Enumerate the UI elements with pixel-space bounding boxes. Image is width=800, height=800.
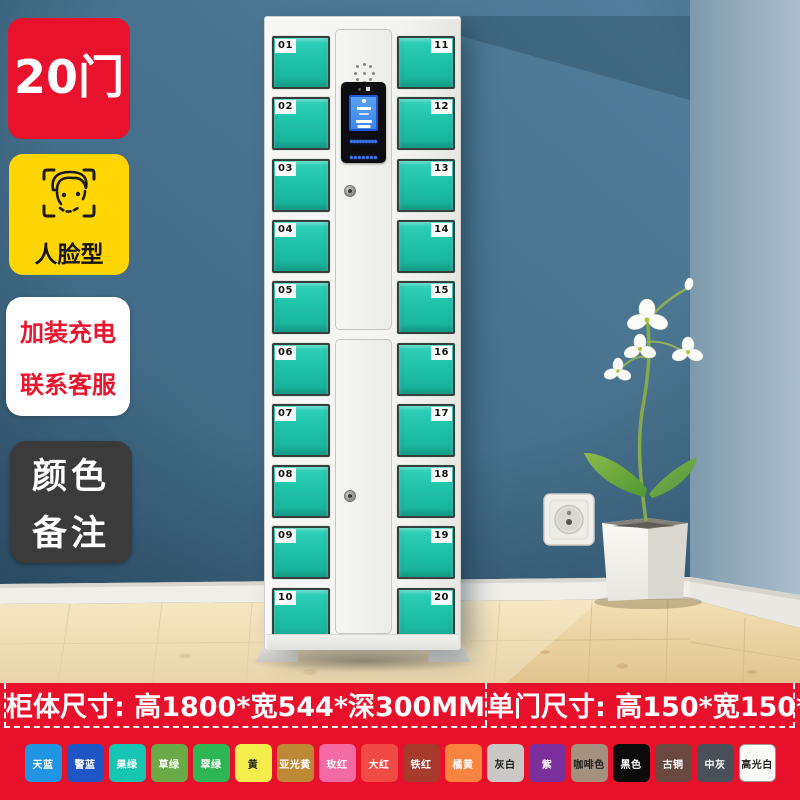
color-swatch-翠绿: 翠绿 xyxy=(193,744,230,782)
face-recognition-badge: 人脸型 xyxy=(9,154,129,275)
door-number-label: 15 xyxy=(431,284,452,298)
color-swatch-警蓝: 警蓝 xyxy=(67,744,104,782)
keypad-key xyxy=(374,156,377,159)
door-count-label: 20门 xyxy=(14,50,124,104)
locker-cabinet: 01020304050607080910 1112131415161718192… xyxy=(264,16,461,650)
locker-door-18: 18 xyxy=(397,465,455,518)
locker-door-14: 14 xyxy=(397,220,455,273)
locker-door-07: 07 xyxy=(272,404,330,457)
locker-door-16: 16 xyxy=(397,343,455,396)
wall-right xyxy=(690,0,800,600)
color-swatch-row: 天蓝警蓝果绿草绿翠绿黄亚光黄玫红大红铁红橘黄灰白紫咖啡色黑色古铜中灰高光白 xyxy=(0,744,800,782)
door-number-label: 18 xyxy=(431,468,452,482)
keypad-key xyxy=(362,156,365,159)
locker-door-10: 10 xyxy=(272,588,330,641)
face-type-label: 人脸型 xyxy=(9,235,129,269)
locker-door-17: 17 xyxy=(397,404,455,457)
door-number-label: 11 xyxy=(431,39,452,53)
keypad-key xyxy=(354,156,357,159)
door-number-label: 04 xyxy=(275,223,296,237)
door-number-label: 03 xyxy=(275,162,296,176)
locker-door-20: 20 xyxy=(397,588,455,641)
keypad-key xyxy=(374,140,377,143)
color-swatch-天蓝: 天蓝 xyxy=(25,744,62,782)
door-count-badge: 20门 xyxy=(8,18,130,139)
locker-door-03: 03 xyxy=(272,159,330,212)
locker-foot xyxy=(428,648,470,662)
door-number-label: 07 xyxy=(275,407,296,421)
size-banner: 柜体尺寸: 高1800*宽544*深300MM 单门尺寸: 高150*宽150*… xyxy=(0,683,800,800)
color-swatch-黄: 黄 xyxy=(235,744,272,782)
keyhole-icon xyxy=(344,185,356,197)
locker-center-door xyxy=(335,339,392,634)
keyhole-icon xyxy=(344,490,356,502)
locker-door-02: 02 xyxy=(272,97,330,150)
speaker-dot xyxy=(363,72,366,75)
door-number-label: 09 xyxy=(275,529,296,543)
touchscreen xyxy=(349,95,378,131)
color-swatch-黑色: 黑色 xyxy=(613,744,650,782)
keypad-key xyxy=(350,156,353,159)
locker-door-05: 05 xyxy=(272,281,330,334)
color-swatch-玫红: 玫红 xyxy=(319,744,356,782)
door-number-label: 12 xyxy=(431,100,452,114)
door-number-label: 19 xyxy=(431,529,452,543)
control-panel xyxy=(341,82,386,163)
locker-door-09: 09 xyxy=(272,526,330,579)
color-swatch-草绿: 草绿 xyxy=(151,744,188,782)
locker-door-11: 11 xyxy=(397,36,455,89)
color-swatch-古铜: 古铜 xyxy=(655,744,692,782)
door-size-label: 单门尺寸: 高150*宽150*深300MM xyxy=(487,683,800,726)
product-image: 01020304050607080910 1112131415161718192… xyxy=(0,0,800,800)
color-swatch-中灰: 中灰 xyxy=(697,744,734,782)
locker-right-door-column: 11121314151617181920 xyxy=(397,17,455,649)
color-swatch-高光白: 高光白 xyxy=(739,744,776,782)
planter-pot xyxy=(602,518,688,601)
door-number-label: 17 xyxy=(431,407,452,421)
color-swatch-咖啡色: 咖啡色 xyxy=(571,744,608,782)
locker-door-15: 15 xyxy=(397,281,455,334)
service-line-2: 联系客服 xyxy=(6,365,130,400)
door-number-label: 14 xyxy=(431,223,452,237)
door-number-label: 05 xyxy=(275,284,296,298)
locker-left-door-column: 01020304050607080910 xyxy=(272,17,330,649)
color-swatch-果绿: 果绿 xyxy=(109,744,146,782)
door-number-label: 08 xyxy=(275,468,296,482)
screen-content xyxy=(351,97,376,129)
speaker-dot xyxy=(363,63,366,66)
indicator-led xyxy=(366,87,370,91)
locker-door-04: 04 xyxy=(272,220,330,273)
locker-plinth xyxy=(267,634,458,650)
speaker-dot xyxy=(369,78,372,81)
speaker-dot xyxy=(356,65,359,68)
keypad-key xyxy=(366,156,369,159)
color-swatch-灰白: 灰白 xyxy=(487,744,524,782)
keypad-key xyxy=(358,156,361,159)
camera-icon xyxy=(358,88,361,91)
color-note-badge: 颜色 备注 xyxy=(10,441,132,563)
locker-door-13: 13 xyxy=(397,159,455,212)
keypad-key xyxy=(370,156,373,159)
color-swatch-紫: 紫 xyxy=(529,744,566,782)
speaker-dot xyxy=(354,72,357,75)
color-swatch-大红: 大红 xyxy=(361,744,398,782)
locker-door-12: 12 xyxy=(397,97,455,150)
locker-door-06: 06 xyxy=(272,343,330,396)
keypad xyxy=(350,140,377,159)
door-number-label: 01 xyxy=(275,39,296,53)
locker-door-01: 01 xyxy=(272,36,330,89)
service-line-1: 加装充电 xyxy=(6,313,130,348)
color-note-line-2: 备注 xyxy=(10,505,132,556)
color-swatch-铁红: 铁红 xyxy=(403,744,440,782)
cabinet-size-label: 柜体尺寸: 高1800*宽544*深300MM xyxy=(6,683,487,726)
door-number-label: 02 xyxy=(275,100,296,114)
face-scan-icon xyxy=(37,163,101,223)
door-number-label: 13 xyxy=(431,162,452,176)
color-swatch-亚光黄: 亚光黄 xyxy=(277,744,314,782)
speaker-dot xyxy=(372,72,375,75)
door-number-label: 20 xyxy=(431,591,452,605)
speaker-dot xyxy=(369,65,372,68)
color-swatch-橘黄: 橘黄 xyxy=(445,744,482,782)
color-note-line-1: 颜色 xyxy=(10,448,132,499)
locker-foot xyxy=(256,648,298,662)
door-number-label: 06 xyxy=(275,346,296,360)
locker-control-column xyxy=(335,29,392,330)
door-number-label: 10 xyxy=(275,591,296,605)
service-badge: 加装充电 联系客服 xyxy=(6,297,130,416)
speaker-dot xyxy=(356,78,359,81)
size-banner-frame: 柜体尺寸: 高1800*宽544*深300MM 单门尺寸: 高150*宽150*… xyxy=(4,683,795,728)
power-outlet xyxy=(544,494,594,545)
door-number-label: 16 xyxy=(431,346,452,360)
locker-door-08: 08 xyxy=(272,465,330,518)
locker-door-19: 19 xyxy=(397,526,455,579)
